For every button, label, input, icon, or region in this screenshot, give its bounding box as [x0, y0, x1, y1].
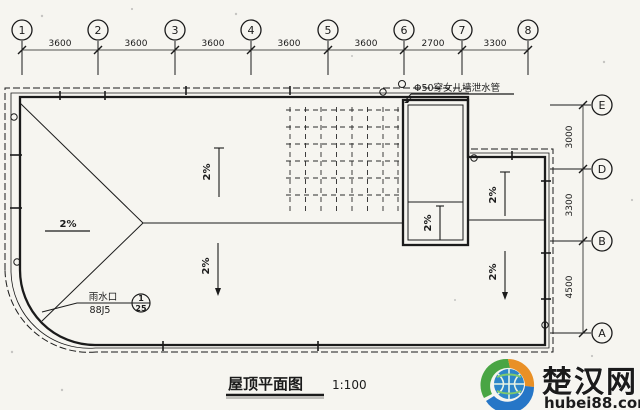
watermark: 楚汉网 hubei88.com: [480, 359, 640, 410]
svg-text:2%: 2%: [60, 219, 77, 230]
svg-text:2%: 2%: [423, 215, 434, 232]
svg-text:2%: 2%: [201, 258, 212, 275]
dim-E-D: 3000: [565, 125, 575, 148]
row-grid: E D B A 3000 3300 4500: [550, 95, 612, 343]
watermark-logo-icon: [480, 359, 534, 410]
dim-6-7: 2700: [422, 39, 445, 49]
dim-3-4: 3600: [202, 39, 225, 49]
svg-text:25: 25: [135, 304, 147, 313]
hatch-grid: [286, 107, 400, 214]
column-grid: 1 2 3 4 5 6 7 8 3600 3600 3600 3600 3600…: [12, 20, 538, 75]
dim-5-6: 3600: [355, 39, 378, 49]
roof-plan-scan: 1 2 3 4 5 6 7 8 3600 3600 3600 3600 3600…: [0, 0, 640, 410]
slope-label-east-lower: 2%: [488, 251, 508, 300]
grid-label-4: 4: [248, 24, 255, 37]
grid-label-1: 1: [19, 24, 26, 37]
drain-outlet-icon: [380, 89, 386, 95]
dim-7-8: 3300: [484, 39, 507, 49]
grid-label-B: B: [598, 235, 606, 248]
grid-label-E: E: [599, 99, 606, 112]
grid-label-D: D: [598, 163, 606, 176]
title-block: 屋顶平面图 1:100: [226, 375, 367, 398]
drain-outlet-icon: [11, 114, 17, 120]
scan-speckles: [11, 8, 633, 396]
rain-outlet-callout: 雨水口 88J5 1 25: [42, 291, 150, 316]
svg-text:2%: 2%: [202, 164, 213, 181]
dim-D-B: 3300: [565, 193, 575, 216]
slope-label-west: 2%: [45, 219, 90, 231]
slope-label-south-center: 2%: [201, 243, 221, 296]
stair-bulkhead: 2%: [403, 100, 468, 245]
drawing-title: 屋顶平面图: [228, 375, 303, 393]
slope-label-north-center: 2%: [202, 148, 224, 197]
dim-4-5: 3600: [278, 39, 301, 49]
svg-text:2%: 2%: [488, 187, 499, 204]
roof-plan-drawing: 1 2 3 4 5 6 7 8 3600 3600 3600 3600 3600…: [0, 0, 640, 410]
grid-label-7: 7: [459, 24, 466, 37]
drain-outlet-icon: [399, 81, 406, 88]
svg-text:1: 1: [138, 294, 144, 303]
grid-label-5: 5: [325, 24, 332, 37]
grid-label-6: 6: [401, 24, 408, 37]
grid-label-8: 8: [525, 24, 532, 37]
hip-line-upper: [20, 103, 143, 223]
roof-ridge-valley-lines: [20, 103, 545, 321]
rain-outlet-label: 雨水口: [89, 291, 118, 303]
slope-label-east-upper: 2%: [488, 172, 510, 216]
grid-label-2: 2: [95, 24, 102, 37]
dim-1-2: 3600: [49, 39, 72, 49]
dim-2-3: 3600: [125, 39, 148, 49]
svg-text:Φ50穿女儿墙泄水管: Φ50穿女儿墙泄水管: [414, 82, 500, 94]
detail-reference-bubble: 1 25: [132, 294, 150, 313]
dim-B-A: 4500: [565, 275, 575, 298]
svg-text:2%: 2%: [488, 264, 499, 281]
watermark-site-url: hubei88.com: [544, 394, 640, 410]
grid-label-3: 3: [172, 24, 179, 37]
grid-label-A: A: [598, 327, 606, 340]
slope-label-bulkhead: 2%: [423, 206, 444, 240]
drawing-scale: 1:100: [332, 378, 367, 392]
rain-outlet-code: 88J5: [90, 305, 111, 316]
